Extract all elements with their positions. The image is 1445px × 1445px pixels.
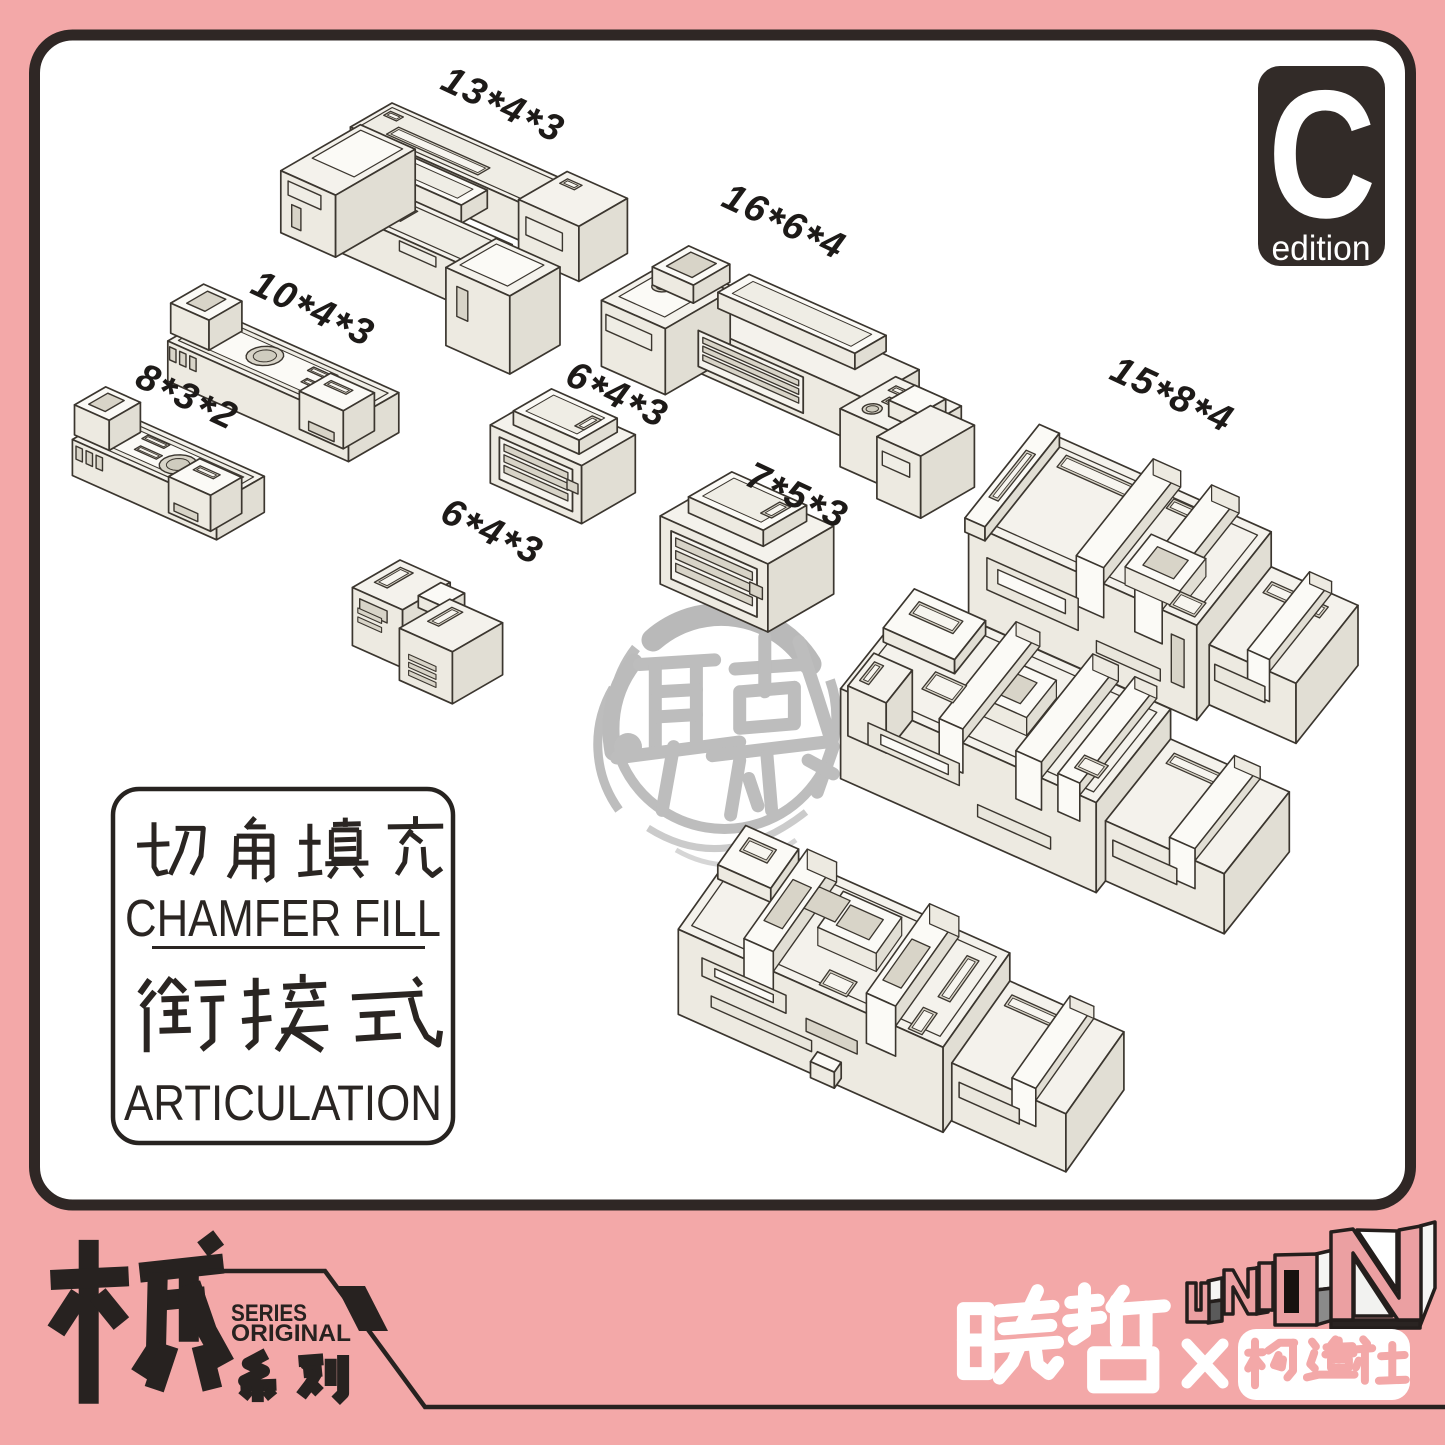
svg-text:edition: edition [1272, 229, 1371, 268]
svg-text:CHAMFER FILL: CHAMFER FILL [125, 890, 441, 948]
svg-text:ORIGINAL: ORIGINAL [231, 1320, 351, 1347]
svg-text:ARTICULATION: ARTICULATION [124, 1075, 442, 1131]
svg-text:C: C [1268, 52, 1376, 256]
